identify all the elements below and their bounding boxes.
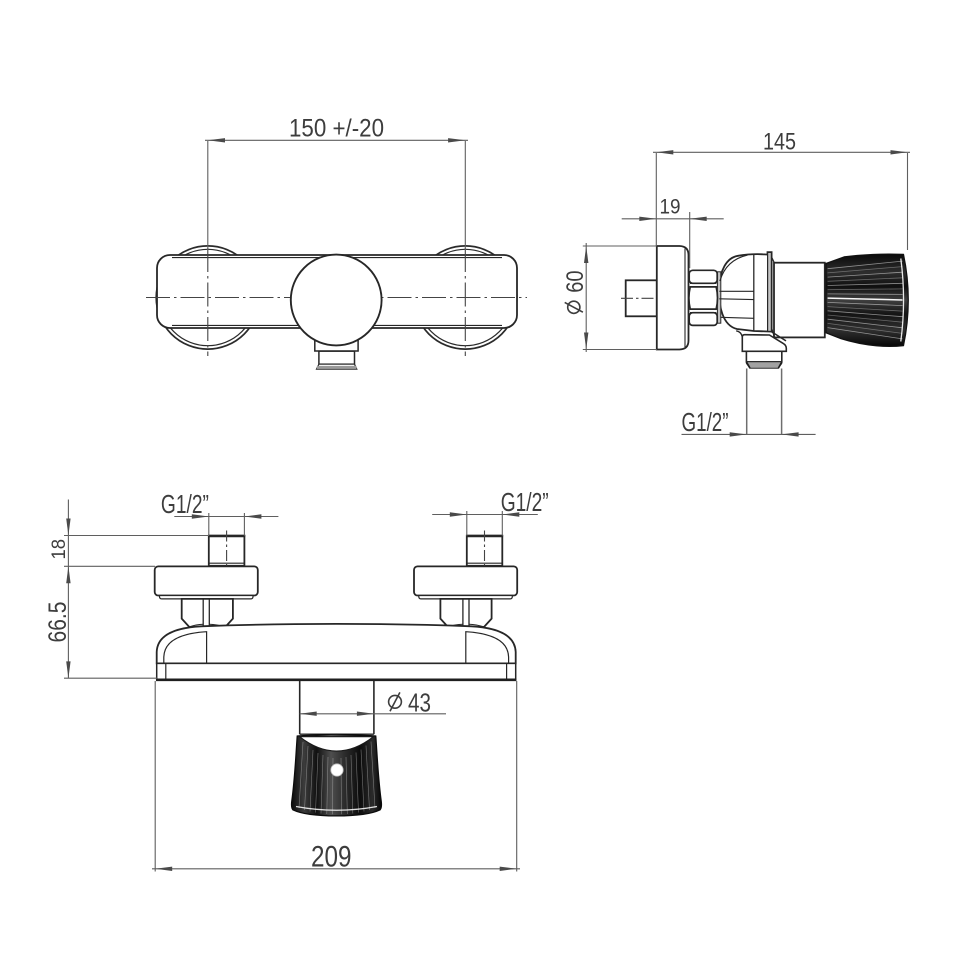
svg-text:43: 43: [408, 689, 431, 717]
svg-text:209: 209: [311, 841, 352, 874]
svg-text:19: 19: [660, 196, 681, 219]
svg-text:60: 60: [562, 270, 589, 292]
svg-text:18: 18: [49, 539, 70, 560]
svg-text:G1/2”: G1/2”: [682, 407, 729, 437]
svg-text:150 +/-20: 150 +/-20: [289, 115, 384, 143]
svg-text:145: 145: [763, 129, 796, 156]
svg-text:66.5: 66.5: [44, 602, 72, 643]
svg-text:G1/2”: G1/2”: [161, 489, 209, 519]
svg-text:G1/2”: G1/2”: [501, 487, 549, 517]
